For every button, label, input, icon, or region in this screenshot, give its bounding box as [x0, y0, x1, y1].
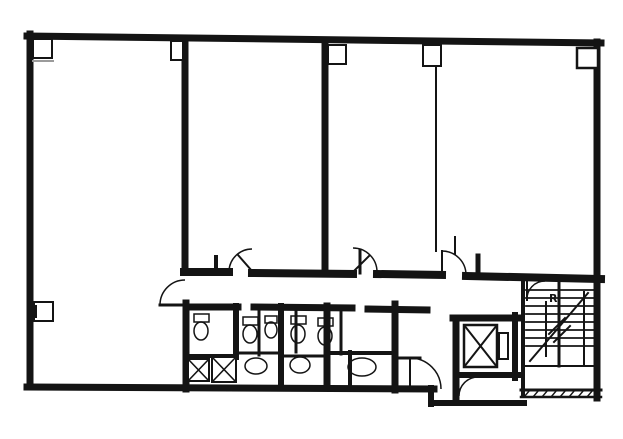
toilet-bowl-4: [291, 325, 305, 343]
door-leaf-middle-room: [238, 255, 252, 271]
top-outer-wall: [27, 36, 601, 43]
column-box-2: [328, 45, 346, 64]
pipe-shaft-box-1: [188, 359, 209, 381]
door-swing-corridor-to-left-room: [160, 280, 185, 305]
column-box-3: [423, 45, 441, 66]
toilet-tank-4: [291, 316, 306, 324]
floor-plan-document: R: [0, 0, 623, 439]
toilet-bowl-3: [265, 322, 277, 338]
corridor-top-wall-d: [466, 276, 601, 279]
stair-break-slash-1: [549, 318, 565, 334]
bottom-outer-wall: [27, 387, 434, 389]
sink-counter-1: [245, 358, 267, 374]
elevator-car: [464, 325, 497, 367]
elevator-door-bar: [499, 333, 508, 359]
door-swing-below-shaft: [459, 377, 478, 396]
pipe-shaft-box-2: [212, 357, 236, 382]
corner-column-box-left: [33, 39, 52, 58]
toilet-tank-1: [194, 314, 209, 322]
corner-column-box-right: [577, 48, 598, 68]
sink-counter-3: [348, 358, 376, 376]
corridor-top-wall-b: [252, 273, 353, 274]
toilet-bowl-2: [243, 325, 257, 343]
corridor-bottom-wall-b: [254, 307, 352, 308]
corridor-top-wall-c: [377, 274, 442, 275]
toilet-tank-2: [243, 317, 258, 325]
floor-plan-canvas: R: [0, 0, 623, 439]
toilet-bowl-1: [194, 322, 208, 340]
door-swing-elevator-hall: [410, 358, 441, 389]
column-box-1: [171, 41, 183, 60]
stair-break-slash-2: [554, 326, 570, 342]
sink-counter-2: [290, 357, 310, 373]
stair-level-mark: R: [549, 292, 558, 305]
